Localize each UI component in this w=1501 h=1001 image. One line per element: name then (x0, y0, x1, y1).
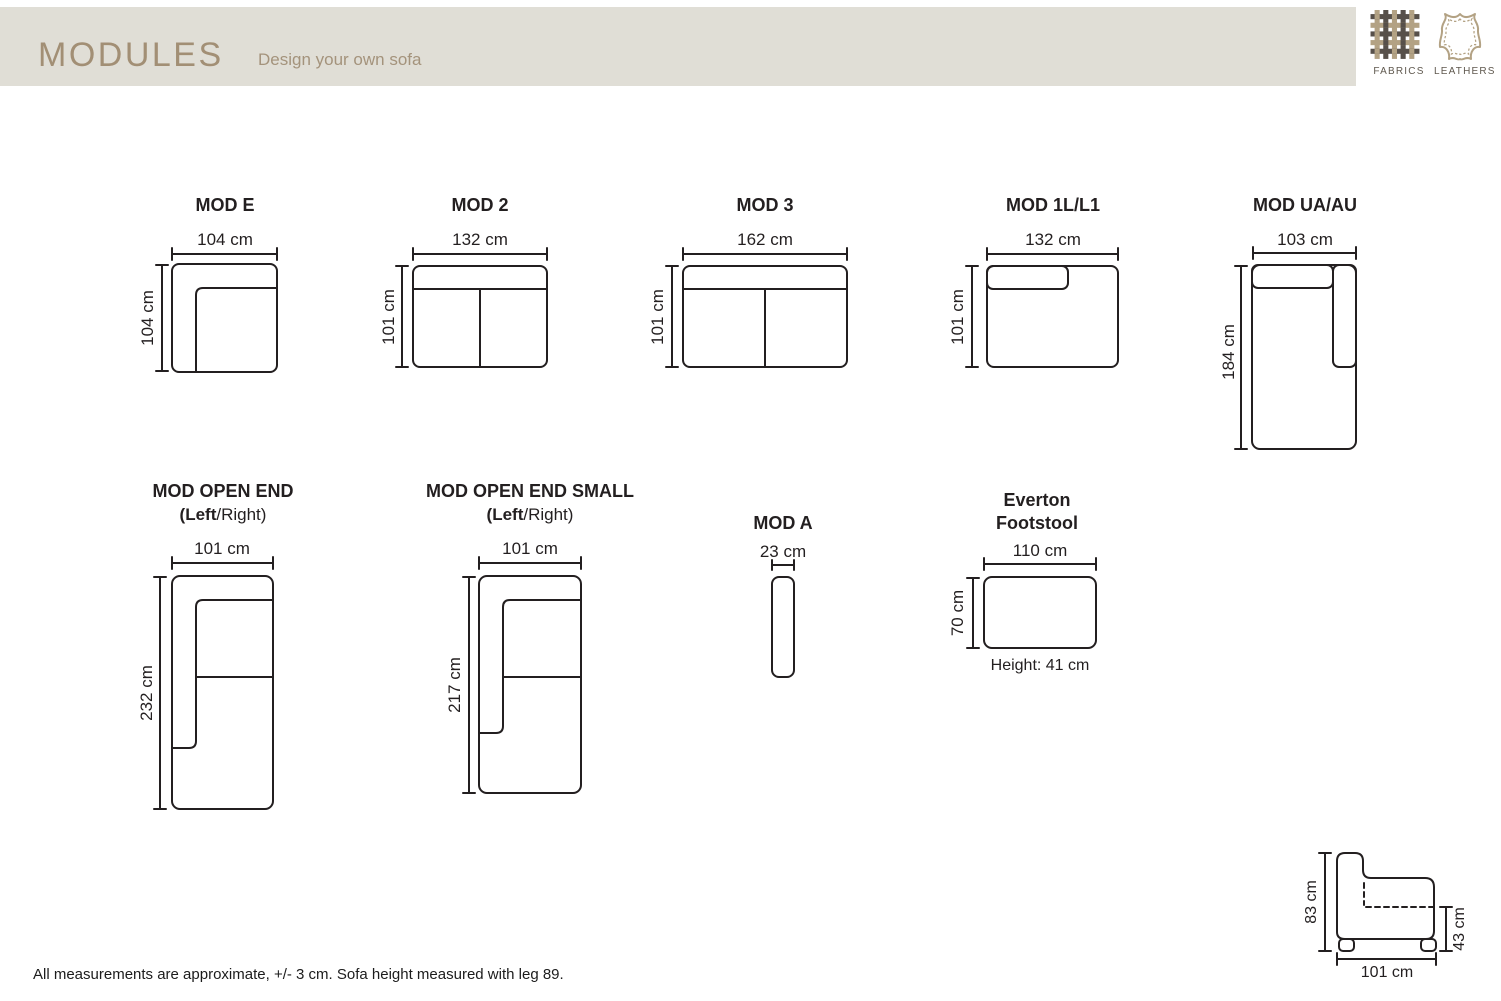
mod-a-width-label: 23 cm (760, 542, 806, 562)
mod-e-outline (172, 264, 277, 372)
mod-open-end-height-label: 232 cm (137, 665, 157, 721)
fabrics-label: FABRICS (1370, 66, 1428, 77)
mod-open-end-title: MOD OPEN END (152, 481, 293, 501)
mod-open-end-drawing (154, 557, 273, 809)
mod-ua-au-height-label: 184 cm (1219, 324, 1239, 380)
side-view-seat-dashed-line (1364, 883, 1434, 907)
side-view-seat-height-label: 43 cm (1450, 907, 1470, 951)
mod-a-drawing (772, 560, 794, 677)
side-view-depth-label: 101 cm (1361, 963, 1413, 983)
mod-open-end-small-title: MOD OPEN END SMALL (426, 481, 634, 501)
mod-ua-au-backrest (1252, 265, 1333, 288)
mod-ua-au-width-label: 103 cm (1277, 230, 1333, 250)
mod-open-end-subtitle-bold: (Left (180, 505, 217, 524)
mod-a-outline (772, 577, 794, 677)
mod-open-end-small-width-label: 101 cm (502, 539, 558, 559)
mod-open-end-small-seat-line (479, 600, 581, 733)
mod-2-outline (413, 266, 547, 367)
mod-3-width-label: 162 cm (737, 230, 793, 250)
mod-3-height-label: 101 cm (648, 289, 668, 345)
mod-open-end-subtitle: (Left/Right) (180, 505, 267, 525)
fabrics-icon (1370, 10, 1422, 63)
everton-footstool-outline (984, 577, 1096, 648)
side-view-front-leg (1339, 939, 1354, 951)
mod-2-title: MOD 2 (451, 195, 508, 215)
mod-open-end-small-subtitle-rest: /Right) (523, 505, 573, 524)
mod-3-outline (683, 266, 847, 367)
everton-footstool-height-label: 70 cm (948, 590, 968, 636)
side-view-back-leg (1421, 939, 1436, 951)
mod-ua-au-drawing (1235, 247, 1356, 449)
mod-open-end-small-subtitle-bold: (Left (487, 505, 524, 524)
side-view-height-label: 83 cm (1302, 880, 1322, 924)
mod-1l-l1-height-label: 101 cm (948, 289, 968, 345)
mod-3-seat-lines (683, 289, 847, 367)
mod-2-height-label: 101 cm (379, 289, 399, 345)
mod-2-drawing (396, 248, 547, 367)
mod-1l-l1-outline (987, 266, 1118, 367)
page-subtitle: Design your own sofa (258, 50, 421, 70)
mod-e-width-label: 104 cm (197, 230, 253, 250)
everton-footstool-width-label: 110 cm (1013, 541, 1068, 561)
mod-open-end-small-subtitle: (Left/Right) (487, 505, 574, 525)
mod-ua-au-armrest (1333, 265, 1356, 367)
mod-open-end-outline (172, 576, 273, 809)
mod-1l-l1-backrest (987, 266, 1068, 289)
mod-open-end-small-drawing (463, 557, 581, 793)
mod-open-end-width-label: 101 cm (194, 539, 250, 559)
mod-e-seat-line (196, 288, 277, 372)
mod-open-end-small-height-label: 217 cm (445, 657, 465, 713)
leathers-link[interactable]: LEATHERS (1434, 10, 1492, 77)
mod-e-height-label: 104 cm (138, 290, 158, 346)
mod-1l-l1-width-label: 132 cm (1025, 230, 1081, 250)
everton-footstool-title-line2: Footstool (996, 513, 1078, 533)
fabrics-link[interactable]: FABRICS (1370, 10, 1428, 77)
mod-a-title: MOD A (753, 513, 812, 533)
mod-2-seat-lines (413, 289, 547, 367)
leathers-icon (1434, 10, 1486, 63)
mod-ua-au-outline (1252, 265, 1356, 449)
mod-open-end-subtitle-rest: /Right) (216, 505, 266, 524)
mod-ua-au-title: MOD UA/AU (1253, 195, 1357, 215)
everton-footstool-drawing (967, 558, 1096, 648)
side-view-outline (1337, 853, 1434, 939)
modules-page: MODULES Design your own sofa (0, 0, 1501, 1001)
mod-open-end-seat-line (172, 600, 273, 748)
mod-3-drawing (666, 248, 847, 367)
page-title: MODULES (38, 38, 224, 72)
everton-footstool-height-note: Height: 41 cm (991, 656, 1090, 676)
mod-3-title: MOD 3 (736, 195, 793, 215)
mod-1l-l1-drawing (966, 248, 1118, 367)
mod-e-drawing (156, 248, 277, 372)
sofa-side-view-drawing (1319, 853, 1452, 965)
mod-2-width-label: 132 cm (452, 230, 508, 250)
leathers-label: LEATHERS (1434, 66, 1492, 77)
mod-open-end-small-outline (479, 576, 581, 793)
everton-footstool-height-dim-line (967, 578, 979, 648)
mod-1l-l1-title: MOD 1L/L1 (1006, 195, 1100, 215)
mod-e-title: MOD E (195, 195, 254, 215)
everton-footstool-title-line1: Everton (1003, 490, 1070, 510)
footer-note: All measurements are approximate, +/- 3 … (33, 966, 564, 983)
